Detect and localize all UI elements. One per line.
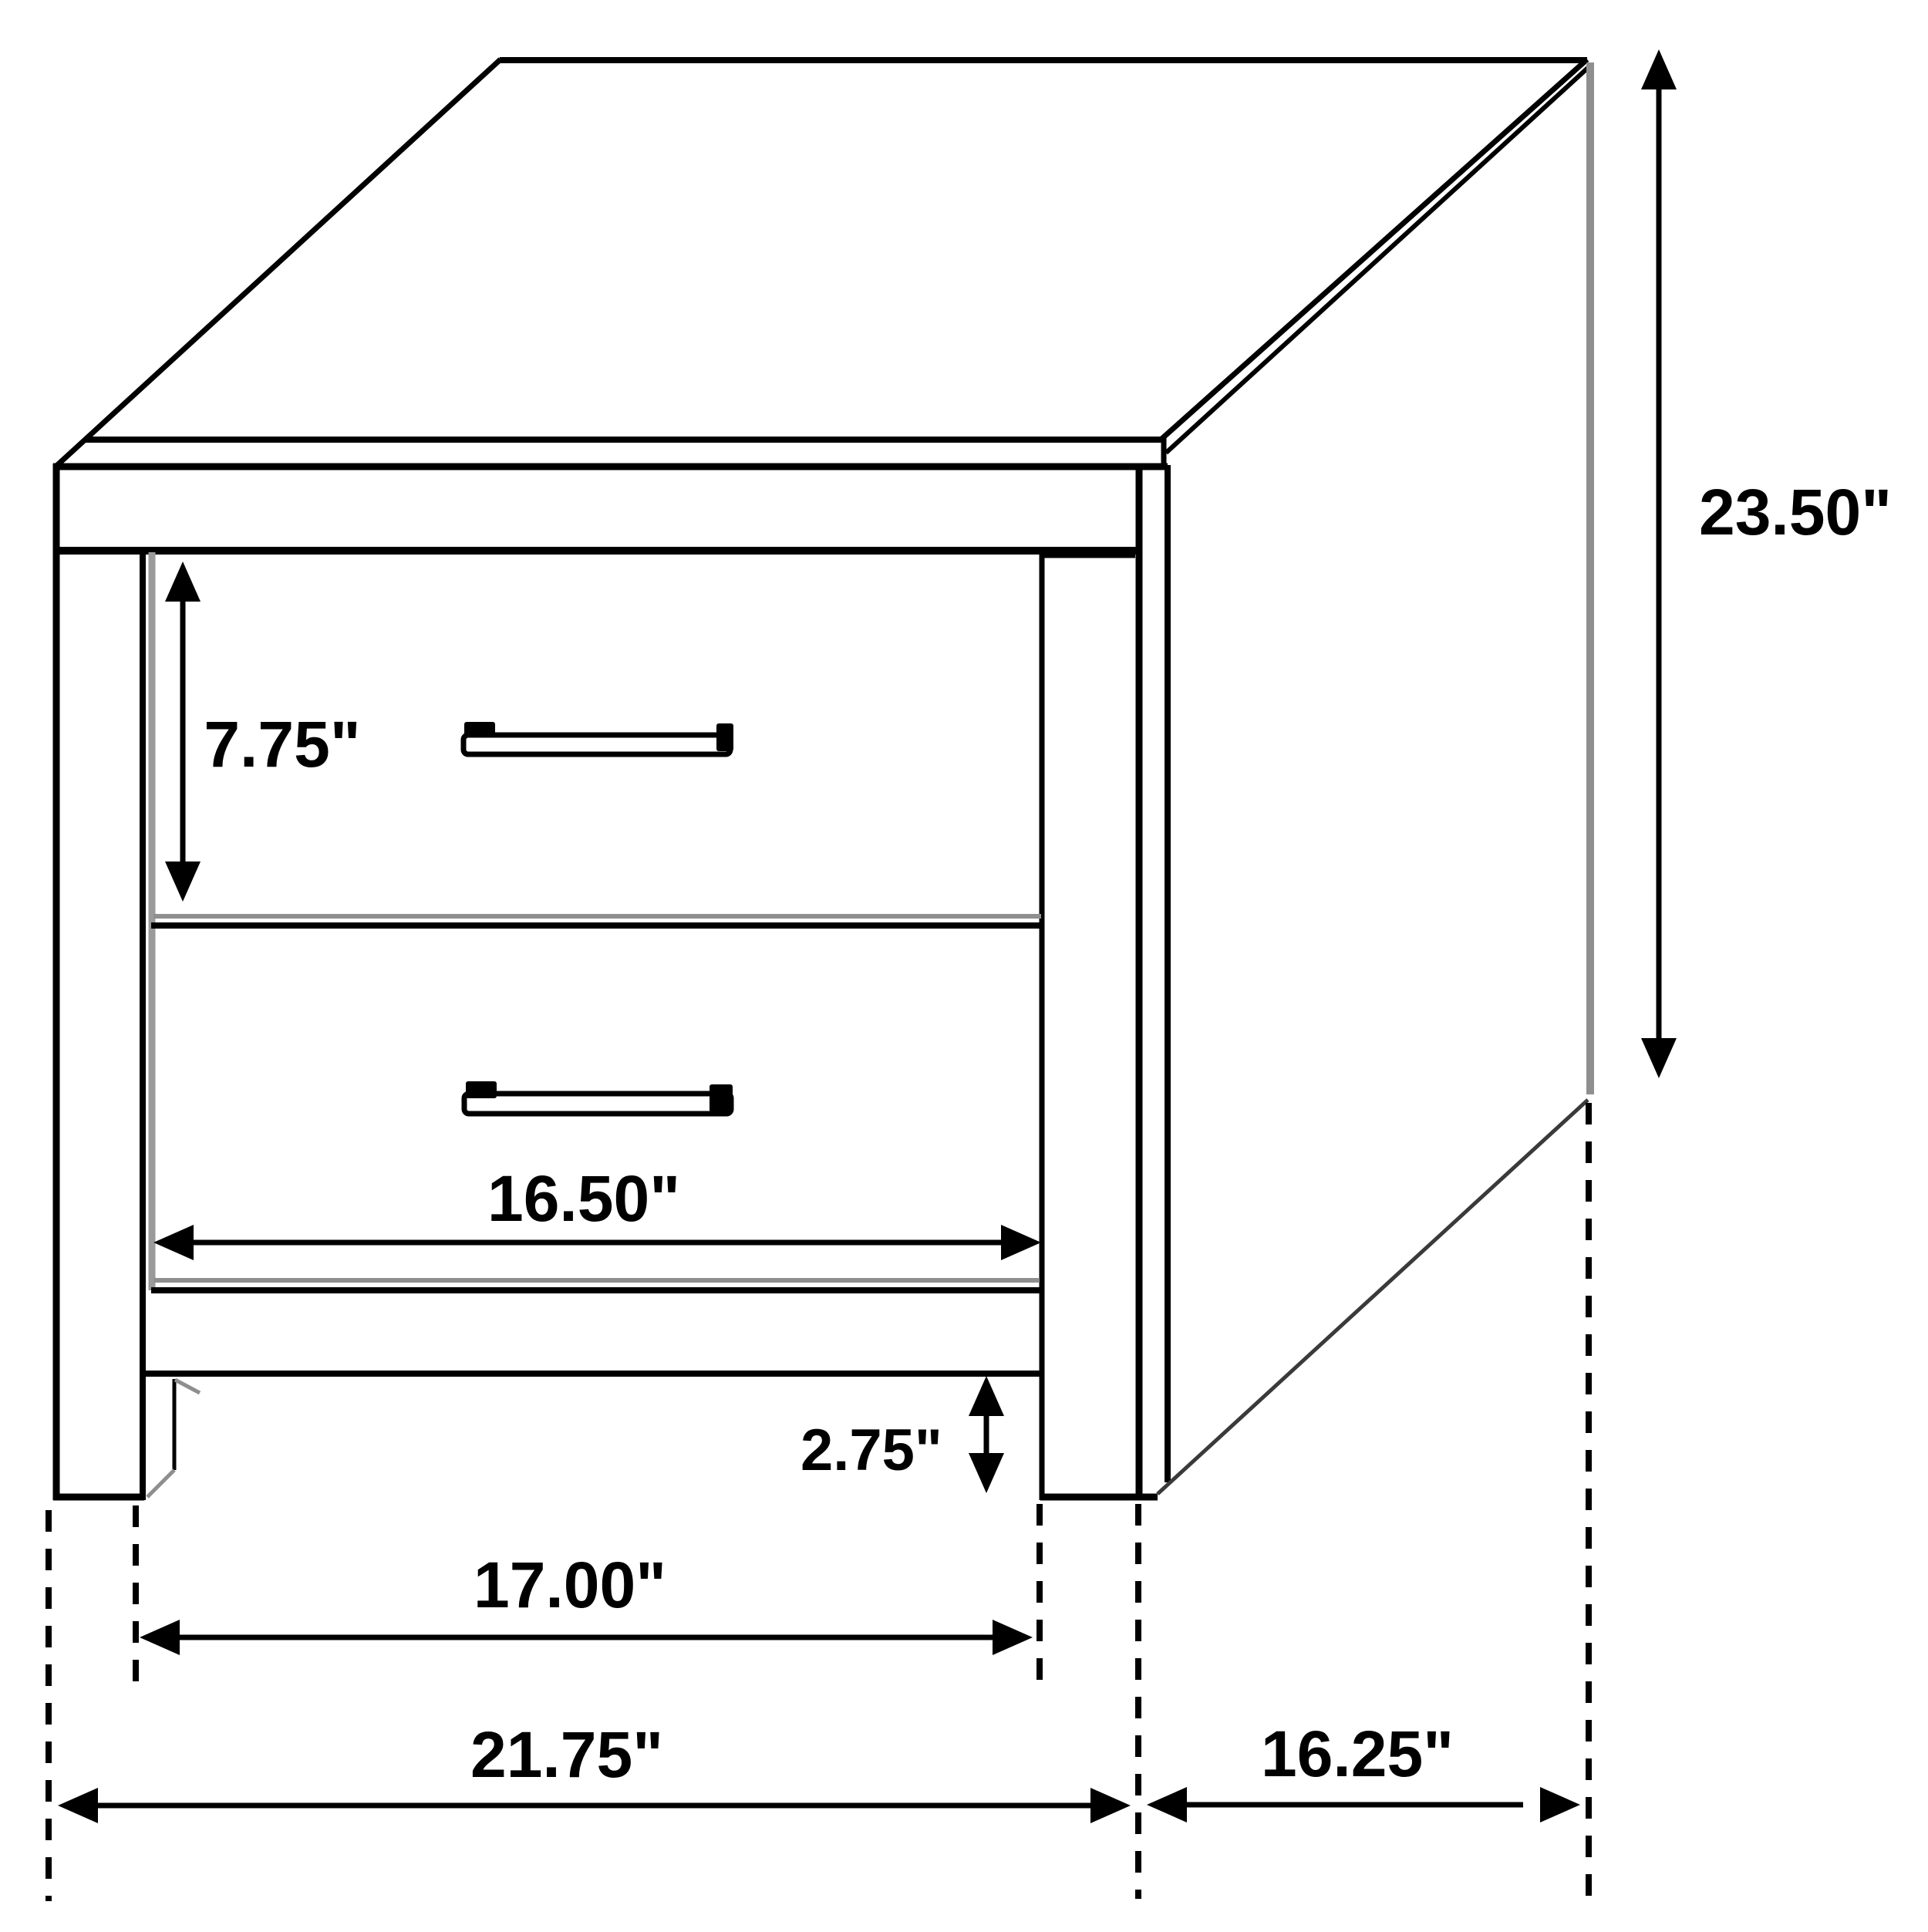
- svg-text:7.75": 7.75": [204, 708, 360, 781]
- svg-text:16.25": 16.25": [1261, 1718, 1454, 1790]
- svg-text:2.75": 2.75": [801, 1418, 942, 1483]
- svg-text:17.00": 17.00": [474, 1549, 666, 1621]
- svg-text:16.50": 16.50": [487, 1162, 680, 1235]
- svg-text:21.75": 21.75": [470, 1718, 663, 1791]
- svg-text:23.50": 23.50": [1699, 476, 1892, 548]
